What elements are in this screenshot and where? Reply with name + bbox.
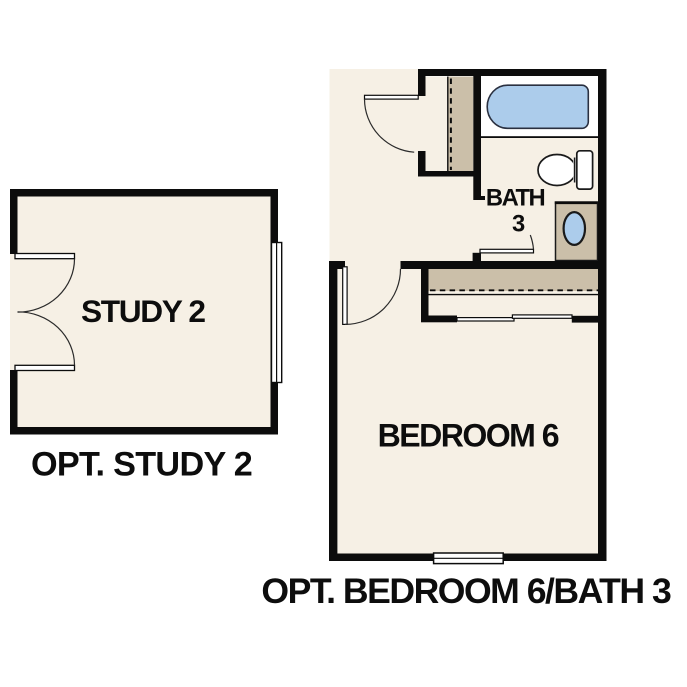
svg-text:OPT. BEDROOM 6/BATH 3: OPT. BEDROOM 6/BATH 3 [261,571,671,611]
svg-text:STUDY 2: STUDY 2 [81,293,206,329]
svg-text:BEDROOM 6: BEDROOM 6 [378,417,560,453]
svg-text:BATH: BATH [486,185,546,212]
svg-text:3: 3 [512,211,525,238]
svg-text:OPT. STUDY 2: OPT. STUDY 2 [31,446,253,484]
